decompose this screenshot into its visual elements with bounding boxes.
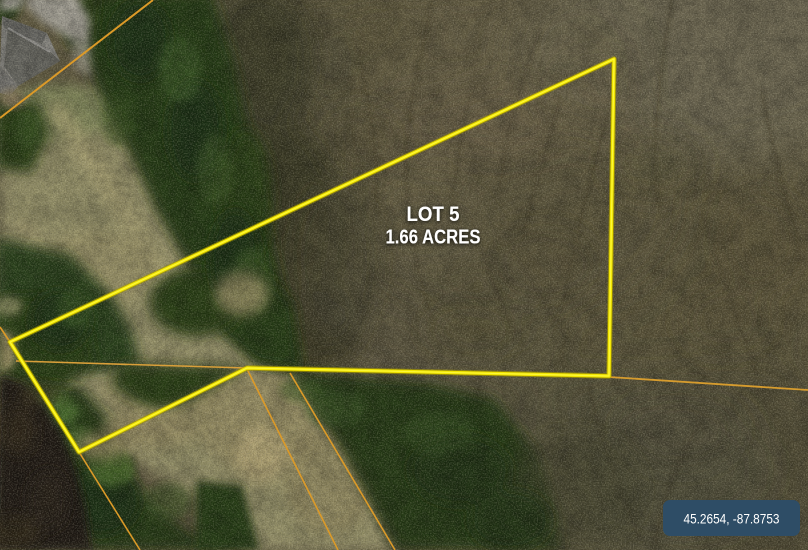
svg-text:1.66 ACRES: 1.66 ACRES (386, 227, 481, 249)
svg-text:45.2654, -87.8753: 45.2654, -87.8753 (684, 512, 780, 527)
svg-text:LOT 5: LOT 5 (407, 203, 460, 226)
